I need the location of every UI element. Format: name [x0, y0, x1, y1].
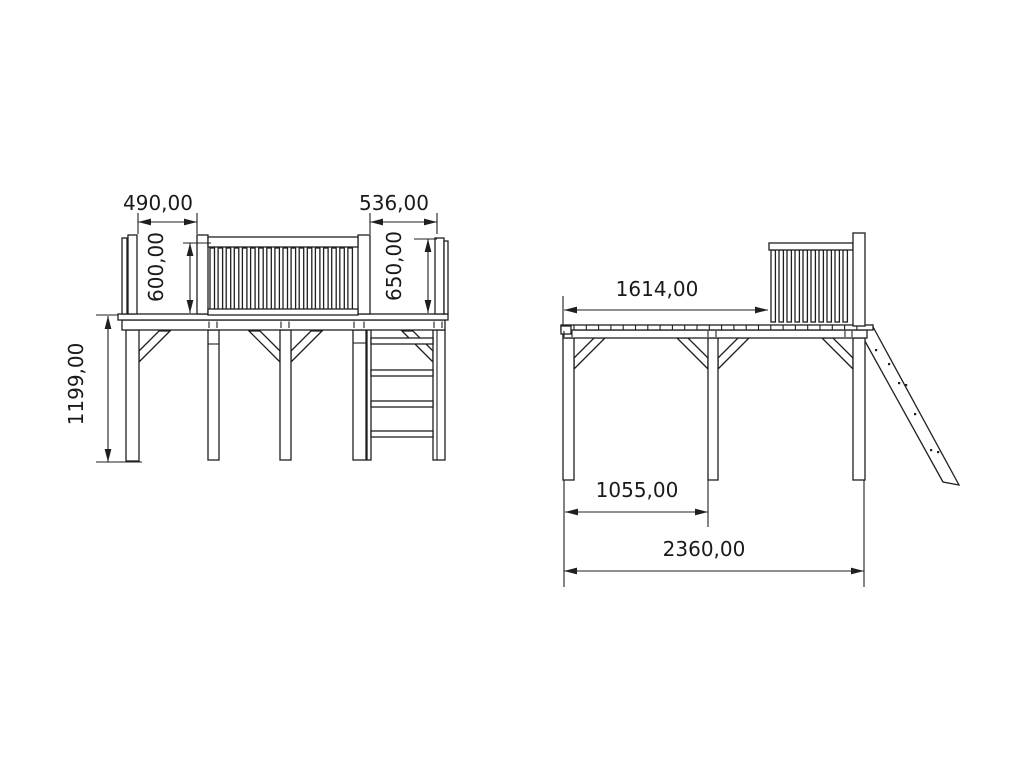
fastener-dot	[914, 413, 916, 415]
railing-post	[128, 235, 137, 314]
rail-edge	[444, 241, 448, 314]
post	[708, 338, 718, 480]
ladder-rung	[371, 370, 433, 376]
brace	[402, 331, 433, 362]
dim-line-650	[425, 239, 432, 313]
post	[853, 338, 865, 480]
slat	[803, 250, 807, 322]
dim-line-2360	[564, 568, 864, 575]
railing-post	[435, 238, 444, 314]
slat	[251, 248, 256, 311]
slat	[242, 248, 247, 311]
fastener-dot	[930, 449, 932, 451]
fastener-dot	[905, 384, 907, 386]
dim-label-1055: 1055,00	[596, 478, 679, 502]
slat	[795, 250, 799, 322]
slat	[779, 250, 783, 322]
slat	[283, 248, 288, 311]
slat	[771, 250, 775, 322]
slat	[275, 248, 280, 311]
dim-line-1055	[565, 509, 708, 516]
railing-slats	[771, 250, 847, 322]
slat	[226, 248, 231, 311]
ladder-rung	[371, 401, 433, 407]
fastener-dot	[888, 363, 890, 365]
slat	[819, 250, 823, 322]
dim-label-600: 600,00	[144, 232, 168, 302]
railing-bottom-rail	[208, 309, 358, 315]
slat	[348, 248, 353, 311]
slat	[315, 248, 320, 311]
slat	[267, 248, 272, 311]
leg-post	[433, 330, 445, 460]
railing-corner-post	[853, 233, 865, 326]
leg-post	[126, 330, 139, 461]
ladder-rung	[371, 431, 433, 437]
dim-label-2360: 2360,00	[663, 537, 746, 561]
leg-post	[353, 330, 366, 460]
dim-label-650: 650,00	[382, 231, 406, 301]
ladder-rung	[371, 338, 433, 344]
dim-line-1199	[105, 316, 112, 462]
dim-line-1614	[564, 307, 768, 314]
brace	[822, 338, 853, 369]
slat	[299, 248, 304, 311]
brace	[249, 331, 280, 362]
brace	[718, 338, 749, 369]
dim-line-600	[187, 243, 194, 313]
slat	[340, 248, 345, 311]
platform-beam	[563, 330, 867, 338]
slat	[827, 250, 831, 322]
railing-top-rail	[208, 237, 358, 247]
slat	[835, 250, 839, 322]
fastener-dot	[875, 349, 877, 351]
slat	[234, 248, 239, 311]
elevation-drawing: 490,00 536,00 600,00 650,00 1199,00 1614…	[0, 0, 1024, 768]
brace	[291, 331, 322, 362]
ladder-rail	[367, 330, 371, 460]
dim-line-490	[138, 219, 197, 226]
fastener-dot	[898, 382, 900, 384]
railing-top-rail	[769, 243, 853, 250]
platform-beam	[122, 320, 445, 330]
dim-line-536	[370, 219, 437, 226]
slat	[291, 248, 296, 311]
slat	[218, 248, 223, 311]
post	[563, 338, 574, 480]
rail-edge	[122, 238, 127, 314]
dim-label-1614: 1614,00	[616, 277, 699, 301]
platform-deck	[561, 325, 873, 330]
slat	[811, 250, 815, 322]
slat	[332, 248, 337, 311]
right-elevation-view	[561, 233, 959, 485]
slat	[307, 248, 312, 311]
dim-label-536: 536,00	[359, 191, 429, 215]
slat	[259, 248, 264, 311]
technical-drawing-page: 490,00 536,00 600,00 650,00 1199,00 1614…	[0, 0, 1024, 768]
railing-slats	[210, 248, 352, 311]
dim-label-490: 490,00	[123, 191, 193, 215]
slat	[843, 250, 847, 322]
slat	[787, 250, 791, 322]
slat	[324, 248, 329, 311]
brace	[139, 331, 170, 362]
leg-post	[280, 330, 291, 460]
dim-label-1199: 1199,00	[64, 343, 88, 426]
railing-post	[358, 235, 370, 314]
slat	[210, 248, 215, 311]
leg-post	[208, 330, 219, 460]
brace	[574, 338, 605, 369]
fastener-dot	[937, 451, 939, 453]
railing-post	[197, 235, 208, 314]
deck-end-cap	[561, 326, 571, 334]
brace	[677, 338, 708, 369]
